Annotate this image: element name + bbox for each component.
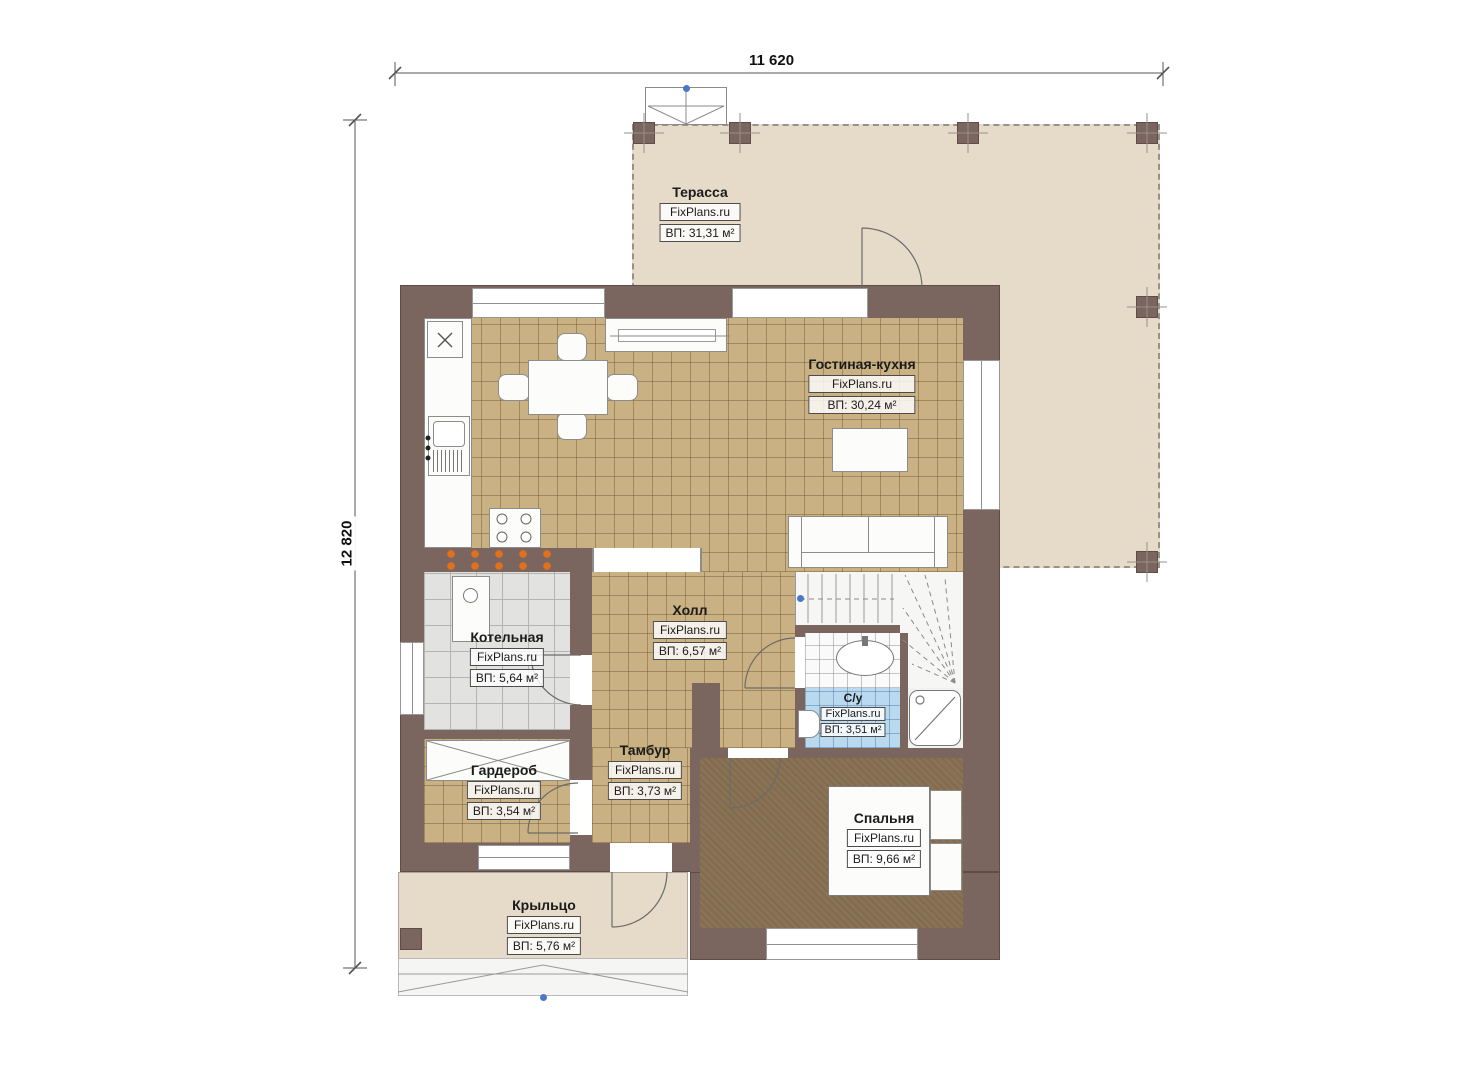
livingroom-window bbox=[963, 360, 1000, 510]
room-brand: FixPlans.ru bbox=[808, 375, 915, 393]
room-label-boiler: Котельная FixPlans.ru ВП: 5,64 м² bbox=[470, 629, 544, 687]
bathroom-sink-tap bbox=[862, 636, 868, 646]
entry-door-opening bbox=[610, 843, 672, 872]
room-label-vestibule: Тамбур FixPlans.ru ВП: 3,73 м² bbox=[608, 742, 682, 800]
bedroom-window bbox=[766, 928, 918, 960]
room-name: Гардероб bbox=[467, 762, 541, 778]
bedroom-door-opening bbox=[728, 748, 788, 758]
dining-chair-right bbox=[606, 374, 638, 401]
radiator-valves bbox=[446, 549, 552, 573]
room-area: ВП: 30,24 м² bbox=[808, 396, 915, 414]
bathroom-door-opening bbox=[795, 637, 805, 688]
room-brand: FixPlans.ru bbox=[467, 781, 541, 799]
room-label-bedroom: Спальня FixPlans.ru ВП: 9,66 м² bbox=[847, 810, 921, 868]
room-area: ВП: 3,54 м² bbox=[467, 802, 541, 820]
island-hood bbox=[618, 329, 716, 342]
toilet bbox=[798, 710, 820, 738]
terrace-column bbox=[729, 122, 751, 144]
terrace-column bbox=[1136, 551, 1158, 573]
wall-sink-winder bbox=[900, 633, 908, 688]
wall-pillar-hall bbox=[692, 683, 720, 751]
terrace-door-opening bbox=[732, 288, 868, 318]
stove bbox=[489, 508, 541, 548]
wardrobe-door-opening bbox=[570, 780, 592, 835]
stairs-winder-floor bbox=[900, 572, 963, 688]
sofa-seat-divider bbox=[868, 517, 869, 552]
dining-table bbox=[528, 360, 608, 415]
room-area: ВП: 5,64 м² bbox=[470, 669, 544, 687]
boiler-dial bbox=[463, 588, 478, 603]
room-label-wardrobe: Гардероб FixPlans.ru ВП: 3,54 м² bbox=[467, 762, 541, 820]
room-brand: FixPlans.ru bbox=[660, 203, 741, 221]
coffee-table bbox=[832, 428, 908, 472]
room-area: ВП: 6,57 м² bbox=[653, 642, 727, 660]
terrace-canopy bbox=[645, 87, 727, 125]
room-name: Спальня bbox=[847, 810, 921, 826]
room-area: ВП: 5,76 м² bbox=[507, 937, 581, 955]
room-label-porch: Крыльцо FixPlans.ru ВП: 5,76 м² bbox=[507, 897, 581, 955]
shower-tray bbox=[909, 690, 961, 746]
boiler-door-opening bbox=[570, 655, 592, 705]
room-name: Котельная bbox=[470, 629, 544, 645]
cased-opening-hall bbox=[592, 548, 702, 572]
room-label-hall: Холл FixPlans.ru ВП: 6,57 м² bbox=[653, 602, 727, 660]
sofa-arm-right bbox=[934, 517, 947, 567]
reference-dot bbox=[683, 85, 690, 92]
fridge bbox=[427, 321, 463, 358]
boiler-window bbox=[400, 642, 424, 715]
porch-steps bbox=[398, 958, 688, 996]
room-name: Крыльцо bbox=[507, 897, 581, 913]
room-label-terrace: Терасса FixPlans.ru ВП: 31,31 м² bbox=[660, 184, 741, 242]
bed-pillow-top bbox=[930, 790, 962, 840]
reference-dot bbox=[540, 994, 547, 1001]
reference-dot bbox=[797, 595, 804, 602]
room-name: Терасса bbox=[660, 184, 741, 200]
wardrobe-window bbox=[478, 845, 570, 870]
terrace-column bbox=[957, 122, 979, 144]
kitchen-window bbox=[472, 288, 605, 318]
terrace-column bbox=[1136, 122, 1158, 144]
room-label-bathroom: С/у FixPlans.ru ВП: 3,51 м² bbox=[820, 691, 885, 737]
dimension-width: 11 620 bbox=[745, 52, 798, 69]
kitchen-drainboard bbox=[433, 450, 465, 472]
dining-chair-left bbox=[498, 374, 530, 401]
room-brand: FixPlans.ru bbox=[470, 648, 544, 666]
room-brand: FixPlans.ru bbox=[507, 916, 581, 934]
dining-chair-bottom bbox=[557, 412, 587, 440]
sofa bbox=[788, 516, 948, 568]
sofa-back bbox=[802, 552, 934, 567]
room-brand: FixPlans.ru bbox=[820, 707, 885, 721]
wall-under-stairs bbox=[795, 625, 900, 633]
dining-chair-top bbox=[557, 333, 587, 361]
room-brand: FixPlans.ru bbox=[653, 621, 727, 639]
sofa-arm-left bbox=[789, 517, 802, 567]
porch-column bbox=[400, 928, 422, 950]
room-brand: FixPlans.ru bbox=[847, 829, 921, 847]
room-area: ВП: 31,31 м² bbox=[660, 224, 741, 242]
room-area: ВП: 3,73 м² bbox=[608, 782, 682, 800]
room-name: С/у bbox=[820, 691, 885, 705]
bed-pillow-bottom bbox=[930, 843, 962, 891]
room-area: ВП: 9,66 м² bbox=[847, 850, 921, 868]
dimension-height: 12 820 bbox=[338, 517, 355, 571]
terrace-column bbox=[1136, 296, 1158, 318]
wall-boiler-wardrobe bbox=[424, 730, 570, 739]
room-name: Гостиная-кухня bbox=[808, 356, 915, 372]
room-brand: FixPlans.ru bbox=[608, 761, 682, 779]
wall-bath-shower bbox=[900, 688, 908, 748]
wall-vestibule-bedroom bbox=[690, 751, 700, 872]
room-name: Холл bbox=[653, 602, 727, 618]
room-label-living-kitchen: Гостиная-кухня FixPlans.ru ВП: 30,24 м² bbox=[808, 356, 915, 414]
floor-plan: 11 620 12 820 Терасса FixPlans.ru ВП: 31… bbox=[0, 0, 1474, 1080]
room-name: Тамбур bbox=[608, 742, 682, 758]
kitchen-sink-basin bbox=[433, 421, 465, 447]
room-area: ВП: 3,51 м² bbox=[820, 723, 885, 737]
terrace-column bbox=[633, 122, 655, 144]
